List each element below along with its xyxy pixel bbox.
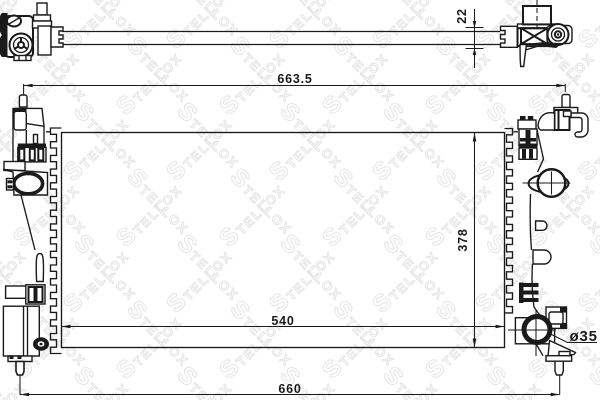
- svg-text:378: 378: [456, 228, 470, 251]
- svg-text:540: 540: [271, 314, 294, 328]
- svg-text:22: 22: [455, 8, 469, 24]
- svg-text:663.5: 663.5: [277, 72, 312, 86]
- svg-text:660: 660: [278, 382, 301, 396]
- svg-text:ø35: ø35: [570, 328, 598, 345]
